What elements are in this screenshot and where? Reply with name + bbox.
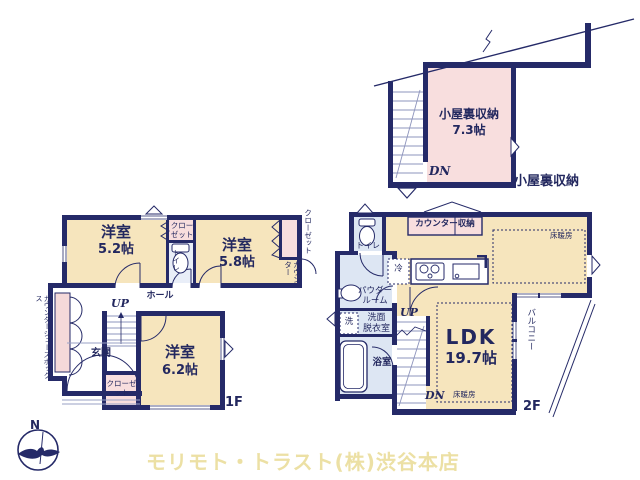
f1-room2-size: 5.8帖	[207, 256, 267, 271]
f1-up-label: UP	[111, 298, 129, 311]
f1-closet-right-label: クローゼット	[303, 209, 312, 265]
f2-vent-arrow-icon	[357, 204, 373, 213]
f2-floor-heating-bottom-label: 床暖房	[453, 391, 476, 400]
f2-fridge-label: 冷	[388, 265, 409, 275]
f2-balcony-label: バルコニー	[525, 308, 535, 358]
f2-up-label: UP	[400, 307, 418, 320]
f1-toilet-label: トイレ	[171, 249, 180, 285]
f1-shoebox-label: カウンターシューズボックス	[35, 295, 51, 385]
f2-kitchen-counter	[411, 255, 488, 284]
compass-icon	[18, 430, 60, 470]
f1-closet-bottom-label: クローゼット	[106, 379, 137, 397]
f2-counter-storage-label: カウンター収納	[409, 220, 481, 230]
f2-bath-label: 浴室	[367, 358, 397, 369]
f1-room3-size: 6.2帖	[150, 364, 210, 379]
f2-balcony-rail	[549, 300, 595, 417]
f2-ldk-size: 19.7帖	[429, 350, 513, 367]
f1-floor-label: 1F	[225, 396, 243, 411]
floorplan-canvas: 小屋裏収納 7.3帖 DN 小屋裏収納 洋室 5.2帖 洋室 5.8帖 洋室 6…	[0, 0, 640, 480]
f1-stairs	[107, 314, 136, 346]
f2-washroom-label-2: 脱衣室	[359, 324, 394, 334]
f1-room1-size: 5.2帖	[84, 243, 148, 258]
attic-down-arrow-icon	[398, 188, 416, 198]
f2-washroom-label-1: 洗面	[359, 313, 394, 323]
f2-floor-heating-top-label: 床暖房	[550, 232, 573, 241]
f1-shoebox-cabinet	[55, 293, 70, 372]
f2-floor-label: 2F	[523, 400, 541, 415]
attic-outside-label: 小屋裏収納	[514, 175, 579, 190]
company-name: モリモト・トラスト(株)渋谷本店	[146, 446, 460, 475]
f1-stairs-arrowhead	[118, 312, 124, 318]
f1-room2-name: 洋室	[207, 237, 267, 254]
attic-dn-label: DN	[429, 165, 450, 179]
f1-entrance-label: 玄関	[85, 348, 117, 360]
f2-toilet-label: トイレ	[353, 241, 383, 250]
f2-dn-label: DN	[425, 390, 445, 403]
f1-hall-label: ホール	[143, 291, 177, 301]
attic-room-name: 小屋裏収納	[427, 108, 511, 122]
f1-counter-label: カウンター	[283, 261, 300, 287]
attic-room-size: 7.3帖	[427, 124, 511, 138]
f1-room1-name: 洋室	[86, 224, 146, 241]
f1-closet-top-label: クローゼット	[169, 221, 195, 239]
f2-powder-room-label-2: ルーム	[357, 297, 393, 307]
f2-washer-label: 洗	[340, 318, 358, 328]
compass-north-label: N	[30, 419, 40, 433]
f1-room3-name: 洋室	[151, 344, 209, 361]
f1-vent-arrow-icon	[146, 206, 162, 214]
f2-bathtub-icon	[340, 341, 367, 392]
f2-ldk-name: LDK	[429, 326, 513, 349]
attic-stairs	[393, 90, 423, 178]
